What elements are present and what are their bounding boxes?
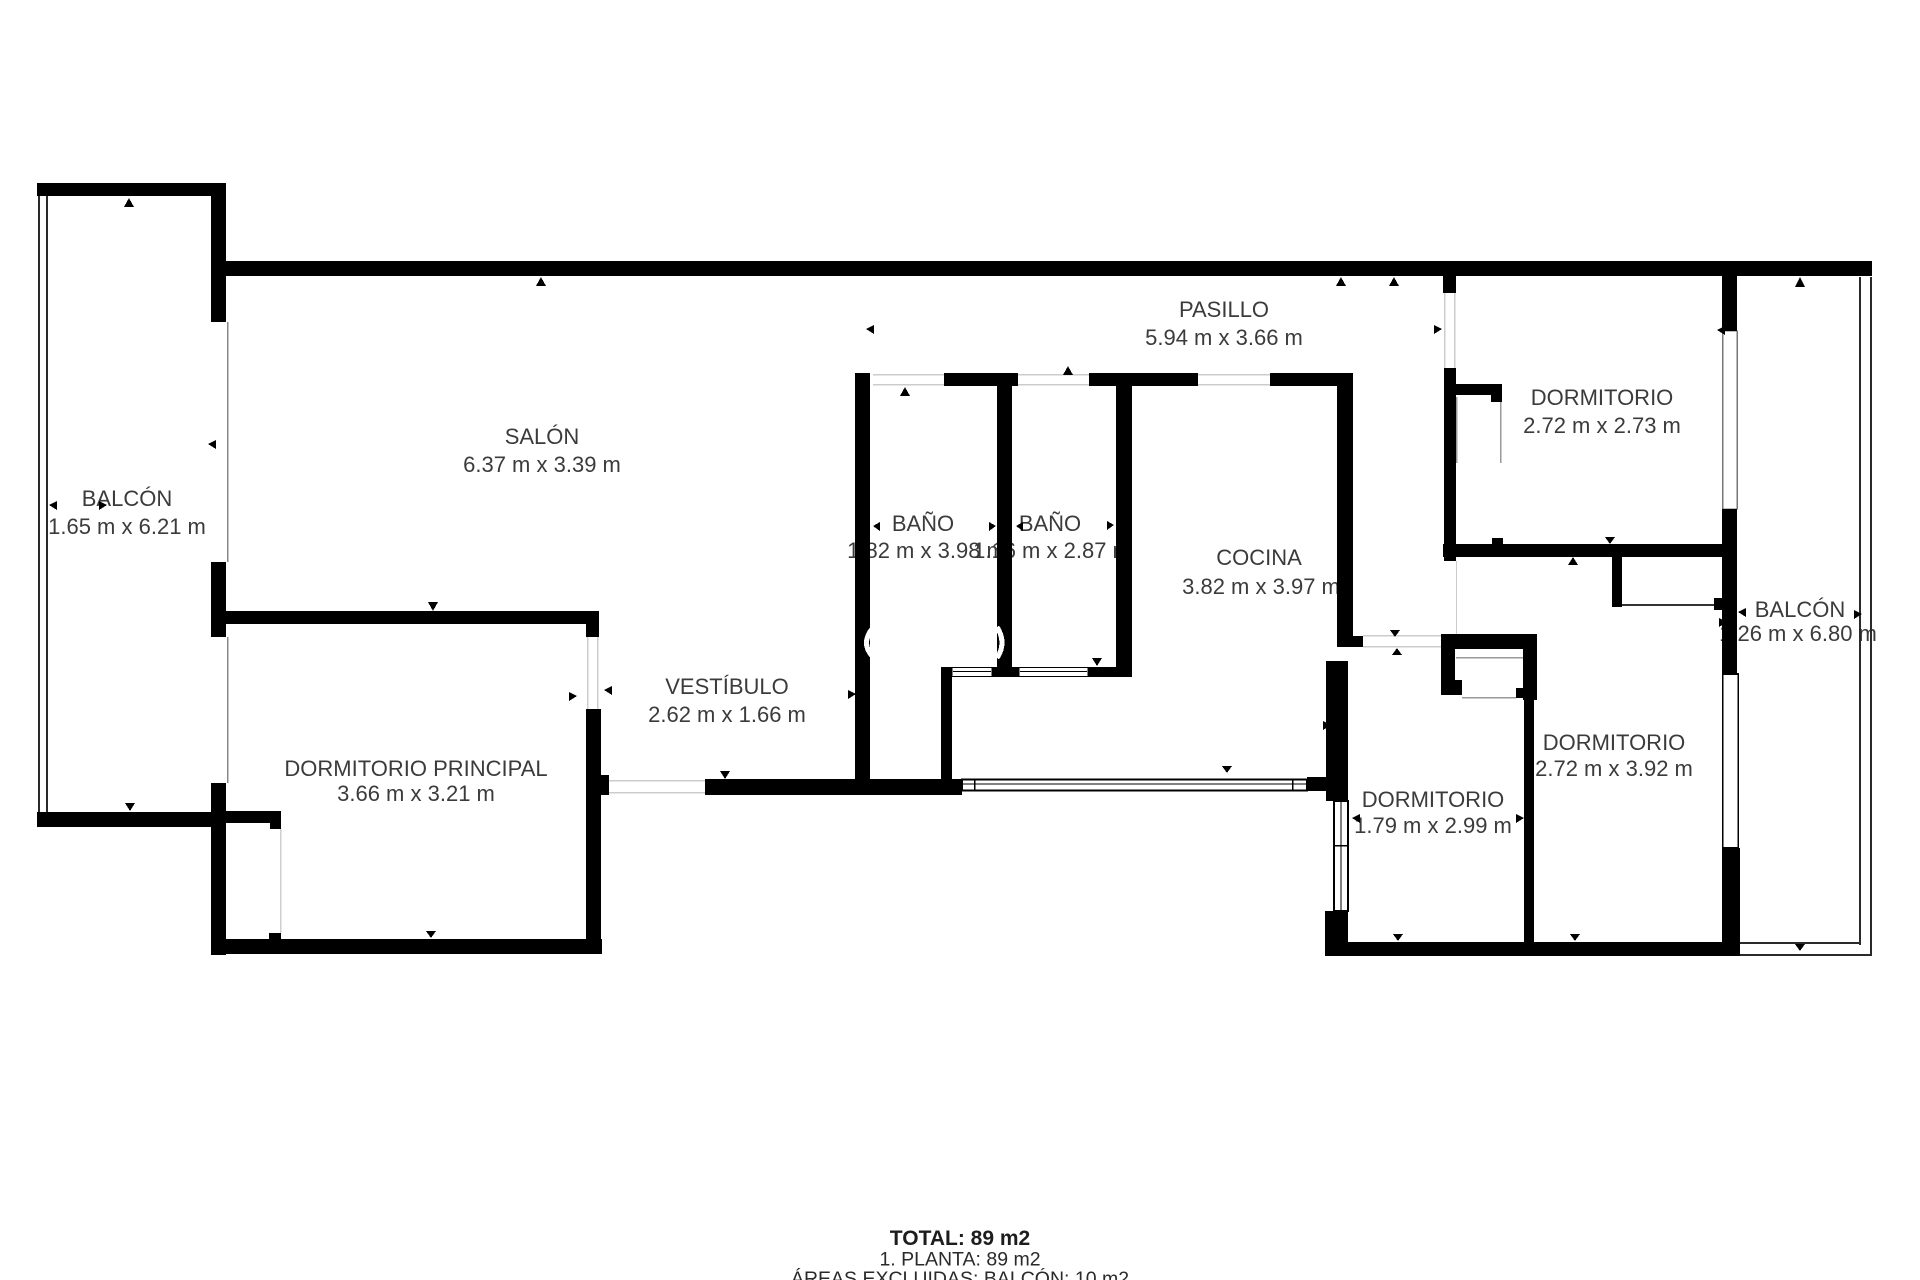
svg-text:3.66 m x 3.21 m: 3.66 m x 3.21 m bbox=[337, 781, 495, 806]
svg-text:2.72 m x 2.73 m: 2.72 m x 2.73 m bbox=[1523, 413, 1681, 438]
svg-text:BAÑO: BAÑO bbox=[1019, 511, 1081, 536]
svg-text:DORMITORIO: DORMITORIO bbox=[1362, 787, 1505, 812]
svg-text:ÁREAS EXCLUIDAS: BALCÓN: 10 m2: ÁREAS EXCLUIDAS: BALCÓN: 10 m2 bbox=[791, 1267, 1129, 1280]
svg-text:2.62 m x 1.66 m: 2.62 m x 1.66 m bbox=[648, 702, 806, 727]
svg-text:6.37 m x 3.39 m: 6.37 m x 3.39 m bbox=[463, 452, 621, 477]
svg-text:DORMITORIO: DORMITORIO bbox=[1543, 730, 1686, 755]
svg-text:1.65 m x 6.21 m: 1.65 m x 6.21 m bbox=[48, 514, 206, 539]
svg-text:VESTÍBULO: VESTÍBULO bbox=[665, 674, 788, 699]
svg-text:1.16 m x 2.87 m: 1.16 m x 2.87 m bbox=[973, 538, 1131, 563]
svg-text:COCINA: COCINA bbox=[1216, 545, 1302, 570]
svg-text:2.72 m x 3.92 m: 2.72 m x 3.92 m bbox=[1535, 756, 1693, 781]
svg-text:BALCÓN: BALCÓN bbox=[1755, 597, 1845, 622]
svg-text:BALCÓN: BALCÓN bbox=[82, 486, 172, 511]
svg-text:PASILLO: PASILLO bbox=[1179, 297, 1269, 322]
svg-text:SALÓN: SALÓN bbox=[505, 424, 580, 449]
svg-text:1.26 m x 6.80 m: 1.26 m x 6.80 m bbox=[1719, 621, 1877, 646]
svg-text:5.94 m x 3.66 m: 5.94 m x 3.66 m bbox=[1145, 325, 1303, 350]
svg-text:1.79 m x 2.99 m: 1.79 m x 2.99 m bbox=[1354, 813, 1512, 838]
svg-text:DORMITORIO: DORMITORIO bbox=[1531, 385, 1674, 410]
svg-text:TOTAL: 89 m2: TOTAL: 89 m2 bbox=[890, 1227, 1030, 1250]
svg-text:DORMITORIO PRINCIPAL: DORMITORIO PRINCIPAL bbox=[284, 756, 547, 781]
svg-text:3.82 m x 3.97 m: 3.82 m x 3.97 m bbox=[1182, 574, 1340, 599]
svg-text:BAÑO: BAÑO bbox=[892, 511, 954, 536]
